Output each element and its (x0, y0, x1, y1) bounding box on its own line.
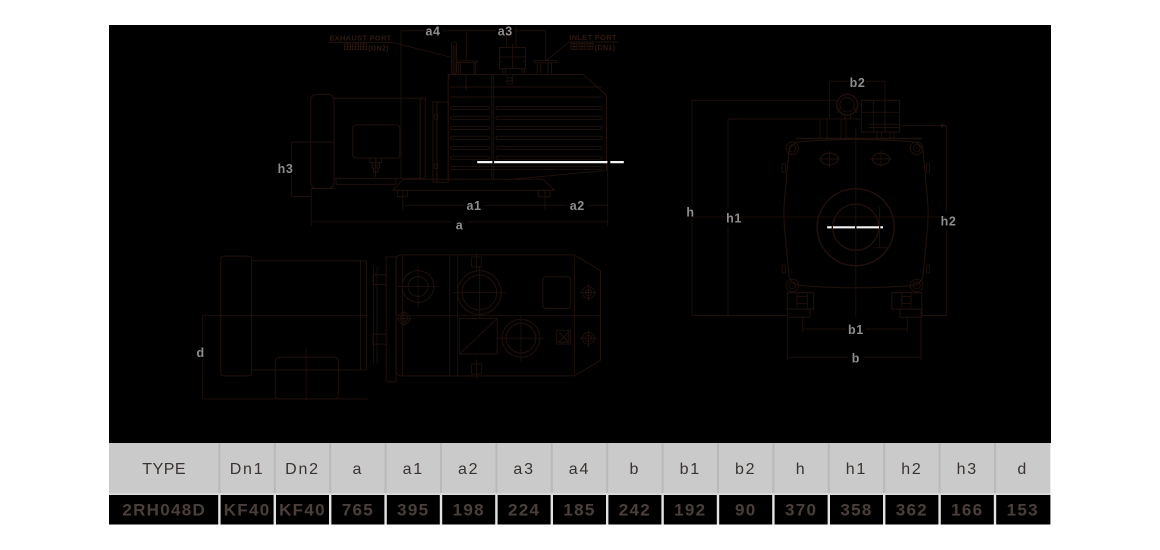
svg-text:INLET PORT: INLET PORT (569, 33, 617, 42)
svg-text:KF40: KF40 (279, 501, 326, 520)
svg-text:a1: a1 (403, 461, 424, 478)
svg-text:358: 358 (840, 501, 872, 520)
svg-text:395: 395 (397, 501, 429, 520)
svg-text:370: 370 (785, 501, 817, 520)
svg-text:d: d (196, 346, 204, 360)
svg-text:h1: h1 (846, 461, 867, 478)
svg-text:TYPE: TYPE (142, 461, 186, 478)
svg-text:192: 192 (674, 501, 706, 520)
svg-text:h2: h2 (901, 461, 922, 478)
svg-text:b2: b2 (850, 76, 866, 90)
svg-text:EXHAUST PORT: EXHAUST PORT (329, 34, 391, 43)
svg-text:185: 185 (563, 501, 595, 520)
svg-text:h3: h3 (957, 461, 978, 478)
svg-text:a2: a2 (570, 199, 585, 213)
svg-text:b1: b1 (848, 323, 864, 337)
svg-text:224: 224 (508, 501, 540, 520)
svg-text:242: 242 (619, 501, 651, 520)
svg-text:d: d (1017, 461, 1028, 478)
svg-text:90: 90 (735, 501, 757, 520)
svg-text:b: b (852, 352, 860, 366)
svg-text:b2: b2 (735, 461, 756, 478)
svg-text:362: 362 (896, 501, 928, 520)
svg-text:166: 166 (951, 501, 983, 520)
svg-text:a3: a3 (513, 461, 534, 478)
svg-text:h3: h3 (278, 162, 294, 176)
svg-text:a1: a1 (466, 199, 481, 213)
svg-text:b1: b1 (680, 461, 701, 478)
svg-text:a4: a4 (569, 461, 590, 478)
svg-text:a: a (456, 219, 464, 233)
svg-text:a3: a3 (498, 24, 513, 38)
svg-text:198: 198 (453, 501, 485, 520)
svg-text:a: a (353, 461, 364, 478)
svg-text:b: b (630, 461, 641, 478)
svg-text:h: h (796, 461, 807, 478)
svg-text:h: h (686, 206, 694, 220)
svg-text:h1: h1 (726, 212, 742, 226)
svg-text:Dn1: Dn1 (230, 461, 265, 478)
svg-text:765: 765 (342, 501, 374, 520)
svg-text:KF40: KF40 (224, 501, 271, 520)
svg-text:Dn2: Dn2 (285, 461, 320, 478)
svg-text:2RH048D: 2RH048D (122, 501, 206, 520)
svg-text:a4: a4 (425, 25, 440, 39)
svg-text:(DN1): (DN1) (595, 43, 616, 52)
svg-text:(DN2): (DN2) (368, 43, 389, 52)
svg-text:h2: h2 (941, 215, 957, 229)
svg-text:a2: a2 (458, 461, 479, 478)
svg-text:153: 153 (1007, 501, 1039, 520)
